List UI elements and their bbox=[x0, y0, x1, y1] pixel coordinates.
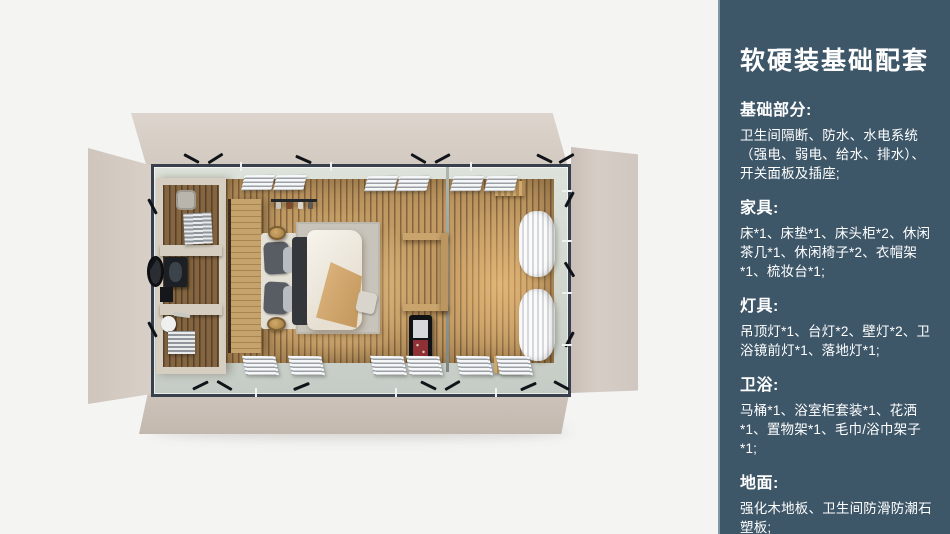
rack-item bbox=[287, 202, 292, 209]
wall-flap-left bbox=[88, 148, 153, 404]
room-render bbox=[0, 0, 718, 534]
rack-item bbox=[298, 202, 303, 209]
window-blind bbox=[288, 356, 325, 376]
window-blind bbox=[450, 176, 484, 192]
section-basics: 基础部分: 卫生间隔断、防水、水电系统（强电、弱电、给水、排水）、开关面板及插座… bbox=[740, 100, 934, 183]
window-blind bbox=[406, 356, 443, 376]
curtain bbox=[519, 211, 555, 277]
section-lighting-heading: 灯具: bbox=[740, 296, 934, 318]
vanity-base bbox=[160, 287, 173, 302]
rail-tick bbox=[562, 190, 572, 192]
toilet bbox=[161, 316, 176, 332]
rail-tick bbox=[562, 292, 572, 294]
section-lighting: 灯具: 吊顶灯*1、台灯*2、壁灯*2、卫浴镜前灯*1、落地灯*1; bbox=[740, 296, 934, 360]
wall-flap-bottom bbox=[139, 394, 569, 434]
rail-tick bbox=[330, 162, 332, 171]
window-blind bbox=[242, 356, 279, 376]
window-blind bbox=[273, 175, 307, 191]
section-basics-heading: 基础部分: bbox=[740, 100, 934, 122]
cabinet-door bbox=[413, 320, 428, 338]
rail-tick bbox=[562, 344, 572, 346]
window-blind bbox=[370, 356, 407, 376]
section-lighting-body: 吊顶灯*1、台灯*2、壁灯*2、卫浴镜前灯*1、落地灯*1; bbox=[740, 322, 936, 360]
rail-tick bbox=[395, 388, 397, 397]
section-basics-body: 卫生间隔断、防水、水电系统（强电、弱电、给水、排水）、开关面板及插座; bbox=[740, 126, 936, 183]
section-flooring-heading: 地面: bbox=[740, 473, 934, 495]
section-flooring-body: 强化木地板、卫生间防滑防潮石塑板; bbox=[740, 499, 936, 534]
section-bathroom-heading: 卫浴: bbox=[740, 375, 934, 397]
sidebar-title: 软硬装基础配套 bbox=[740, 46, 934, 76]
section-flooring: 地面: 强化木地板、卫生间防滑防潮石塑板; bbox=[740, 473, 934, 534]
bedside-table bbox=[268, 226, 286, 240]
bedside-table bbox=[267, 317, 286, 331]
wall-flap-right bbox=[571, 147, 638, 393]
rail-tick bbox=[240, 162, 242, 171]
bathroom-partition-wall bbox=[160, 245, 222, 256]
slide: 软硬装基础配套 基础部分: 卫生间隔断、防水、水电系统（强电、弱电、给水、排水）… bbox=[0, 0, 950, 534]
section-furniture-body: 床*1、床垫*1、床头柜*2、休闲茶几*1、休闲椅子*2、衣帽架*1、梳妆台*1… bbox=[740, 224, 936, 281]
towel-radiator bbox=[183, 212, 213, 244]
rack-item bbox=[276, 202, 281, 209]
towel-rack bbox=[168, 331, 195, 354]
section-furniture-heading: 家具: bbox=[740, 198, 934, 220]
section-bathroom-body: 马桶*1、浴室柜套装*1、花洒*1、置物架*1、毛巾/浴巾架子*1; bbox=[740, 401, 936, 458]
window-blind bbox=[456, 356, 493, 376]
rail-tick bbox=[255, 388, 257, 397]
cabinet-art-panel bbox=[413, 340, 428, 357]
window-blind bbox=[396, 176, 430, 192]
section-furniture: 家具: 床*1、床垫*1、床头柜*2、休闲茶几*1、休闲椅子*2、衣帽架*1、梳… bbox=[740, 198, 934, 281]
rail-tick bbox=[470, 162, 472, 171]
window-blind bbox=[496, 356, 533, 376]
rail-tick bbox=[562, 240, 572, 242]
window-blind bbox=[364, 176, 398, 192]
shelf-post bbox=[441, 233, 448, 311]
window-blind bbox=[484, 176, 518, 192]
headboard-wall bbox=[228, 199, 261, 353]
window-blind bbox=[241, 175, 275, 191]
section-bathroom: 卫浴: 马桶*1、浴室柜套装*1、花洒*1、置物架*1、毛巾/浴巾架子*1; bbox=[740, 375, 934, 458]
shower-tray bbox=[176, 190, 196, 210]
bathroom-partition-wall bbox=[160, 304, 222, 315]
spec-sidebar: 软硬装基础配套 基础部分: 卫生间隔断、防水、水电系统（强电、弱电、给水、排水）… bbox=[718, 0, 950, 534]
vanity-sink bbox=[169, 262, 182, 282]
rail-tick bbox=[495, 388, 497, 397]
rack-item bbox=[308, 202, 313, 209]
curtain bbox=[519, 289, 555, 361]
